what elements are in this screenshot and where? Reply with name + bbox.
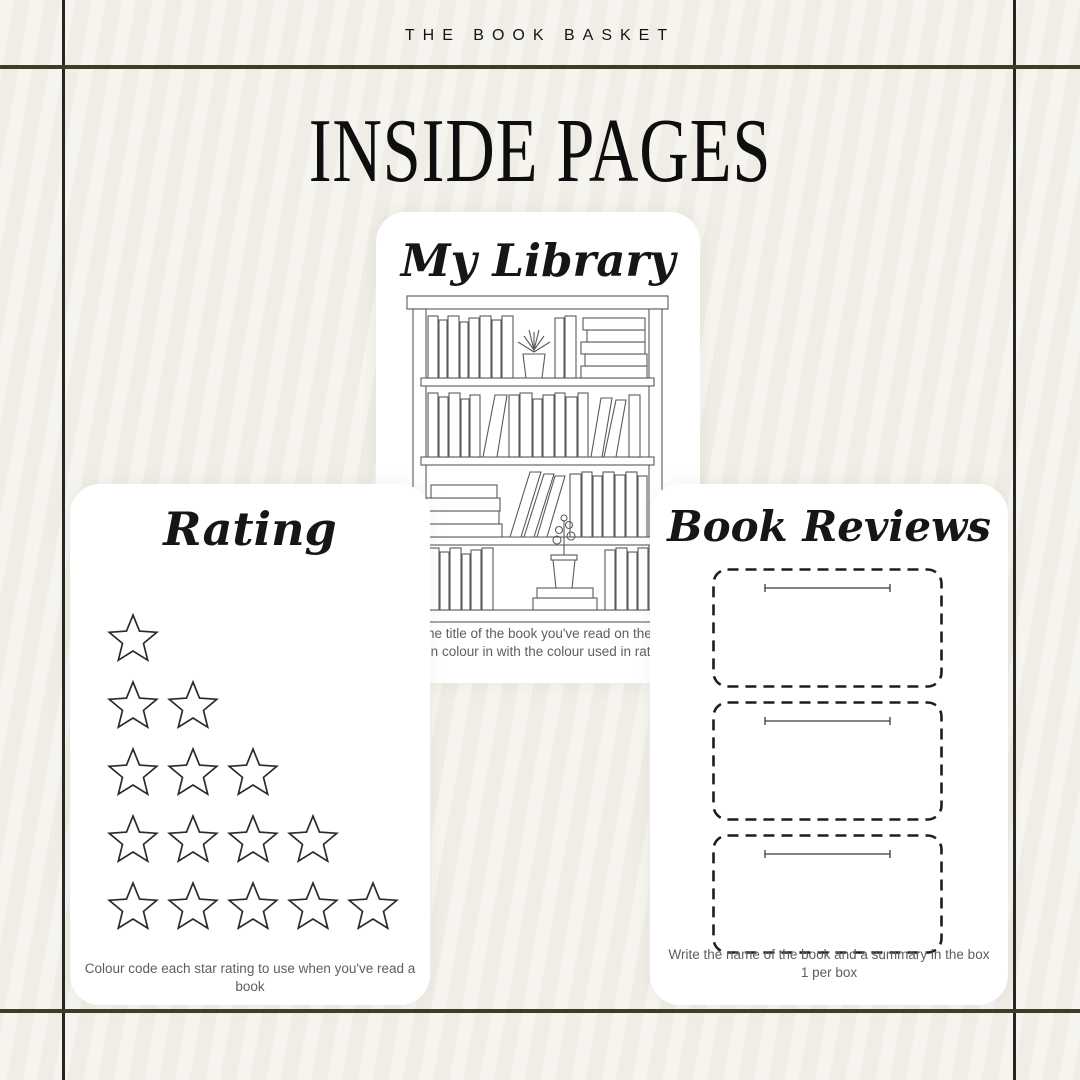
review-box: [712, 568, 943, 688]
star-icon: [227, 880, 279, 932]
star-pyramid: [107, 612, 399, 947]
reviews-card: Book Reviews Write the name of the book …: [650, 484, 1008, 1005]
star-icon: [167, 679, 219, 731]
plant-icon: [518, 330, 550, 378]
star-row: [107, 880, 399, 932]
star-icon: [287, 813, 339, 865]
reviews-caption-line1: Write the name of the book and a summary…: [650, 946, 1008, 964]
reviews-caption: Write the name of the book and a summary…: [650, 946, 1008, 982]
review-box: [712, 701, 943, 821]
page-title: INSIDE PAGES: [119, 106, 961, 198]
star-icon: [107, 880, 159, 932]
star-icon: [107, 813, 159, 865]
star-row: [107, 679, 399, 731]
frame-line-horizontal-bottom: [0, 1009, 1080, 1013]
frame-line-vertical-right: [1013, 0, 1016, 1080]
reviews-caption-line2: 1 per box: [650, 964, 1008, 982]
rating-card-title: Rating: [70, 502, 430, 556]
star-icon: [227, 746, 279, 798]
star-row: [107, 813, 399, 865]
review-box: [712, 834, 943, 954]
rating-card: Rating Colour code each star rating to u…: [70, 484, 430, 1005]
frame-line-horizontal-top: [0, 65, 1080, 69]
star-icon: [287, 880, 339, 932]
rating-caption: Colour code each star rating to use when…: [70, 960, 430, 996]
reviews-card-title: Book Reviews: [650, 502, 1008, 551]
shelf-row-2-books: [428, 393, 640, 457]
shelf-row-3-books: [426, 472, 647, 537]
frame-line-vertical-left: [62, 0, 65, 1080]
star-icon: [107, 746, 159, 798]
star-row: [107, 746, 399, 798]
star-icon: [347, 880, 399, 932]
star-icon: [107, 612, 159, 664]
review-boxes: [712, 568, 943, 967]
star-icon: [167, 746, 219, 798]
star-icon: [107, 679, 159, 731]
library-card-title: My Library: [376, 234, 700, 287]
star-icon: [167, 880, 219, 932]
shelf-row-1-books: [428, 316, 647, 378]
star-icon: [167, 813, 219, 865]
brand-name: THE BOOK BASKET: [0, 27, 1080, 45]
star-row: [107, 612, 399, 664]
star-icon: [227, 813, 279, 865]
bookshelf-illustration: [405, 292, 671, 624]
